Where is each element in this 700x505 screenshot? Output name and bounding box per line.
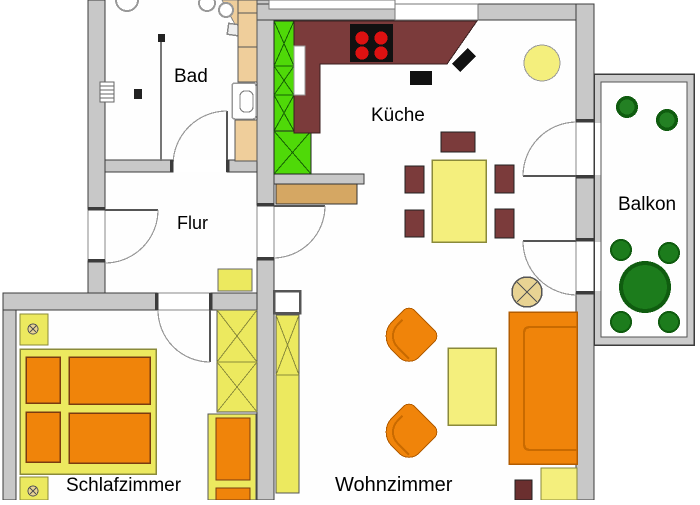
svg-text:Küche: Küche [371, 105, 425, 126]
svg-text:Flur: Flur [177, 213, 208, 233]
svg-text:Wohnzimmer: Wohnzimmer [335, 474, 453, 496]
svg-text:Balkon: Balkon [618, 194, 676, 215]
svg-text:Bad: Bad [174, 66, 208, 87]
svg-text:Schlafzimmer: Schlafzimmer [66, 475, 182, 496]
